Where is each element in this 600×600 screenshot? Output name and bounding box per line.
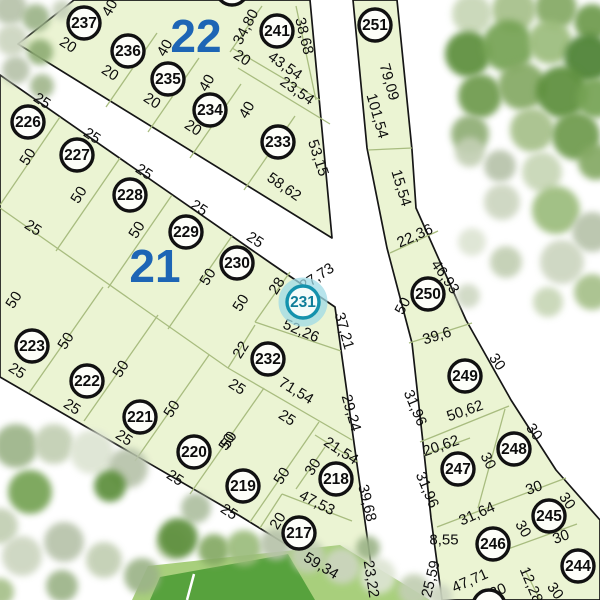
parcel-number-235[interactable]: 235	[155, 71, 181, 88]
tree	[226, 530, 262, 566]
tree	[8, 470, 52, 514]
tree	[34, 424, 74, 464]
parcel-number-228[interactable]: 228	[117, 187, 143, 204]
tree	[158, 518, 198, 558]
parcel-number-251[interactable]: 251	[362, 17, 388, 34]
parcel-number-249[interactable]: 249	[452, 368, 478, 385]
parcel-number-221[interactable]: 221	[127, 409, 153, 426]
parcel-number-234[interactable]: 234	[197, 102, 223, 119]
tree	[490, 246, 522, 278]
parcel-number-231[interactable]: 231	[290, 294, 316, 311]
tree	[27, 39, 53, 65]
parcel-number-229[interactable]: 229	[173, 224, 199, 241]
parcel-number-246[interactable]: 246	[480, 536, 506, 553]
parcel-number-223[interactable]: 223	[19, 338, 45, 355]
parcel-number-230[interactable]: 230	[224, 255, 250, 272]
parcel-number-217[interactable]: 217	[286, 525, 312, 542]
parcel-number-236[interactable]: 236	[115, 43, 141, 60]
tree	[458, 228, 486, 256]
tree	[2, 536, 42, 576]
parcel-number-244[interactable]: 244	[565, 558, 591, 575]
tree	[455, 137, 485, 167]
tree	[181, 493, 211, 523]
tree	[70, 430, 114, 474]
parcel-number-220[interactable]: 220	[181, 444, 207, 461]
tree	[86, 542, 122, 578]
parcel-number-250[interactable]: 250	[415, 286, 441, 303]
parcel-number-222[interactable]: 222	[74, 373, 100, 390]
parcel-number-245[interactable]: 245	[536, 508, 562, 525]
parcel-number-237[interactable]: 237	[71, 15, 97, 32]
tree	[484, 184, 520, 220]
parcel-number-241[interactable]: 241	[264, 23, 290, 40]
tree	[540, 240, 584, 284]
parcel-number-232[interactable]: 232	[255, 351, 281, 368]
parcel-number-226[interactable]: 226	[15, 114, 41, 131]
block-label-21: 21	[129, 240, 180, 292]
cadastral-map: 40202020204040402034,8038,6843,5423,5453…	[0, 0, 600, 600]
tree	[510, 108, 554, 152]
tree	[124, 558, 160, 594]
tree	[458, 74, 502, 118]
parcel-number-248[interactable]: 248	[501, 441, 527, 458]
dimension-label: 8,55	[429, 532, 458, 549]
parcel-number-227[interactable]: 227	[64, 147, 90, 164]
parcel-number-233[interactable]: 233	[265, 134, 291, 151]
tree	[2, 56, 30, 84]
parcel-number-218[interactable]: 218	[323, 471, 349, 488]
tree	[533, 287, 563, 317]
tree	[22, 4, 50, 32]
block-label-22: 22	[170, 10, 221, 62]
tree	[356, 536, 380, 560]
parcel-number-247[interactable]: 247	[445, 461, 471, 478]
map-canvas: 40202020204040402034,8038,6843,5423,5453…	[0, 0, 600, 600]
tree	[94, 470, 126, 502]
tree	[484, 150, 516, 182]
tree	[198, 534, 230, 566]
parcel-number-219[interactable]: 219	[230, 478, 256, 495]
tree	[44, 522, 84, 562]
